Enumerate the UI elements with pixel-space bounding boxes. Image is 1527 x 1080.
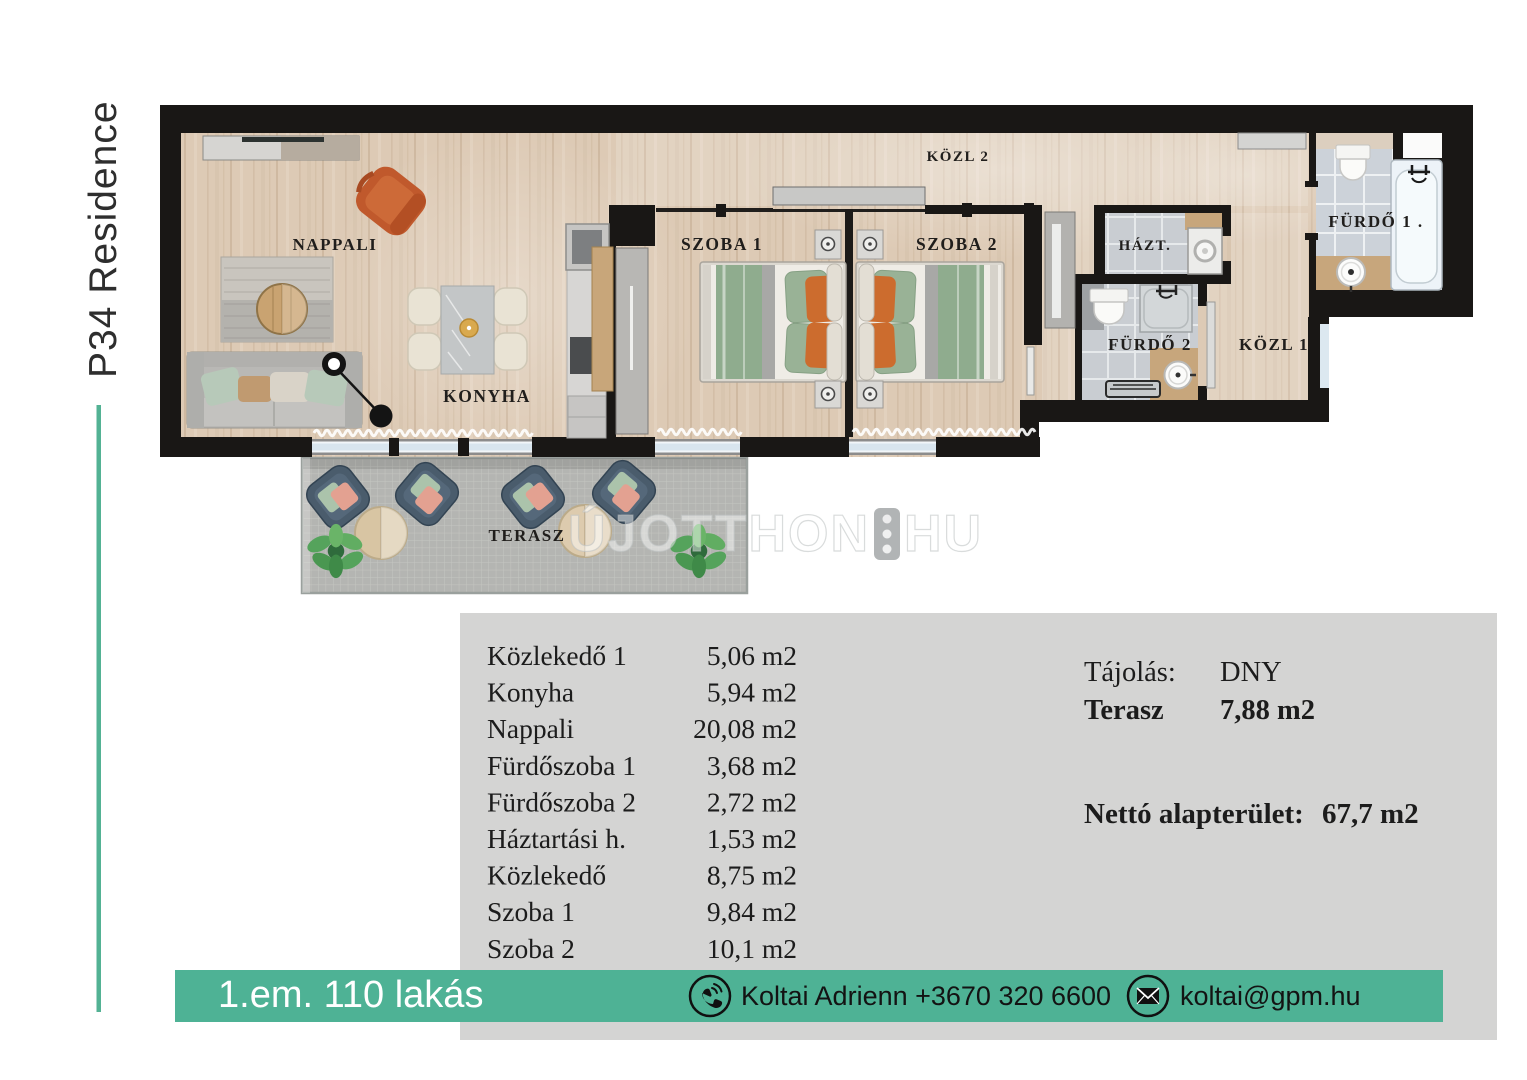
svg-text:SZOBA 1: SZOBA 1 <box>681 234 763 254</box>
svg-text:9,84 m2: 9,84 m2 <box>707 896 797 927</box>
svg-text:Fürdőszoba 1: Fürdőszoba 1 <box>487 750 636 781</box>
svg-text:Nettó alapterület:: Nettó alapterület: <box>1084 798 1304 830</box>
svg-text:Háztartási h.: Háztartási h. <box>487 823 626 854</box>
svg-text:Konyha: Konyha <box>487 677 574 708</box>
svg-text:67,7 m2: 67,7 m2 <box>1322 798 1419 830</box>
svg-text:Tájolás:: Tájolás: <box>1084 657 1176 688</box>
svg-text:3,68 m2: 3,68 m2 <box>707 750 797 781</box>
svg-text:DNY: DNY <box>1220 657 1282 688</box>
svg-text:Közlekedő 1: Közlekedő 1 <box>487 640 627 671</box>
svg-text:Szoba 1: Szoba 1 <box>487 896 575 927</box>
svg-text:1,53 m2: 1,53 m2 <box>707 823 797 854</box>
svg-text:8,75 m2: 8,75 m2 <box>707 860 797 891</box>
svg-text:koltai@gpm.hu: koltai@gpm.hu <box>1180 981 1361 1011</box>
svg-text:10,1 m2: 10,1 m2 <box>707 933 797 964</box>
svg-text:NAPPALI: NAPPALI <box>293 235 378 254</box>
svg-text:5,06 m2: 5,06 m2 <box>707 640 797 671</box>
svg-text:20,08 m2: 20,08 m2 <box>693 713 797 744</box>
svg-text:Szoba 2: Szoba 2 <box>487 933 575 964</box>
svg-text:FÜRDŐ 1 .: FÜRDŐ 1 . <box>1328 212 1423 231</box>
svg-text:ÚJOTTHON: ÚJOTTHON <box>568 505 870 563</box>
svg-text:SZOBA 2: SZOBA 2 <box>916 234 998 254</box>
svg-text:Nappali: Nappali <box>487 713 574 744</box>
svg-text:7,88 m2: 7,88 m2 <box>1220 695 1315 726</box>
svg-text:Terasz: Terasz <box>1084 695 1164 726</box>
svg-text:FÜRDŐ 2: FÜRDŐ 2 <box>1108 335 1192 354</box>
svg-text:KONYHA: KONYHA <box>443 386 531 406</box>
svg-text:P34 Residence: P34 Residence <box>82 100 125 378</box>
svg-text:Koltai Adrienn +3670 320 6600: Koltai Adrienn +3670 320 6600 <box>741 981 1111 1011</box>
svg-text:HU: HU <box>904 505 983 563</box>
svg-text:HÁZT.: HÁZT. <box>1119 237 1172 254</box>
svg-text:2,72 m2: 2,72 m2 <box>707 786 797 817</box>
svg-text:Fürdőszoba 2: Fürdőszoba 2 <box>487 786 636 817</box>
svg-text:1.em. 110 lakás: 1.em. 110 lakás <box>218 974 483 1016</box>
svg-text:Közlekedő: Közlekedő <box>487 860 606 891</box>
svg-text:KÖZL 1: KÖZL 1 <box>1239 335 1309 354</box>
svg-text:TERASZ: TERASZ <box>488 526 565 545</box>
svg-text:KÖZL 2: KÖZL 2 <box>927 148 990 165</box>
svg-text:5,94 m2: 5,94 m2 <box>707 677 797 708</box>
